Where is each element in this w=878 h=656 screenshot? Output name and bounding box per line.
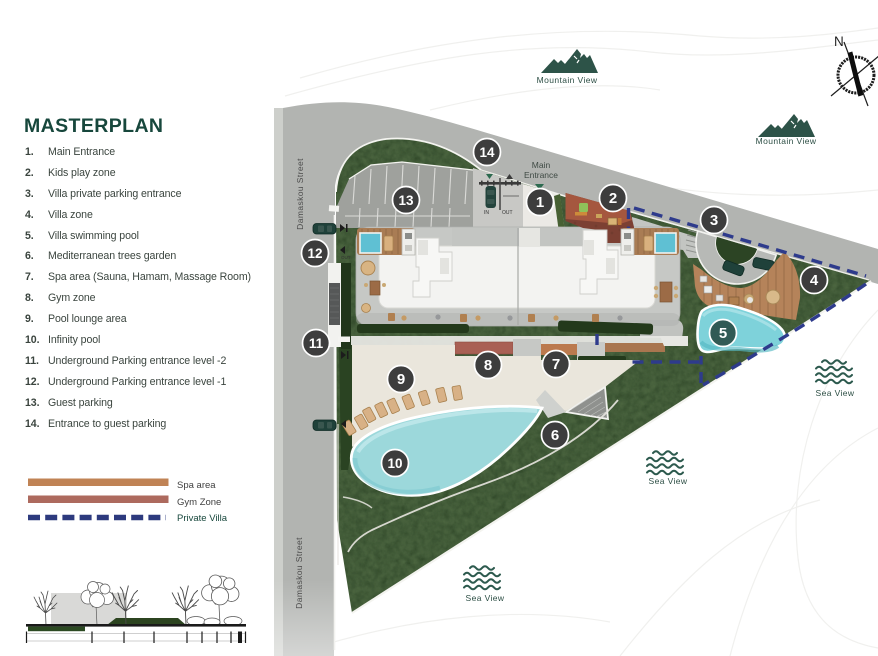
svg-text:OUT: OUT xyxy=(502,210,513,216)
svg-text:3.: 3. xyxy=(25,188,34,200)
svg-text:5.: 5. xyxy=(25,230,34,242)
svg-text:Private Villa: Private Villa xyxy=(177,513,228,524)
svg-text:4: 4 xyxy=(810,272,819,289)
svg-text:5: 5 xyxy=(719,325,727,342)
svg-text:Entrance: Entrance xyxy=(524,170,558,180)
svg-text:Gym Zone: Gym Zone xyxy=(177,497,221,508)
svg-text:11: 11 xyxy=(309,336,324,351)
svg-text:Damaskou Street: Damaskou Street xyxy=(295,158,305,230)
svg-text:13.: 13. xyxy=(25,397,40,409)
svg-text:3: 3 xyxy=(710,212,718,229)
svg-text:8.: 8. xyxy=(25,292,34,304)
svg-text:Main: Main xyxy=(532,160,551,170)
svg-text:Spa area: Spa area xyxy=(177,480,216,491)
svg-text:6: 6 xyxy=(551,427,559,444)
svg-text:10.: 10. xyxy=(25,334,40,346)
svg-text:1: 1 xyxy=(536,194,544,211)
svg-text:Underground Parking entrance l: Underground Parking entrance level -2 xyxy=(48,355,226,367)
svg-text:Villa swimming pool: Villa swimming pool xyxy=(48,230,139,242)
svg-text:12: 12 xyxy=(307,246,322,261)
svg-text:8: 8 xyxy=(484,357,492,374)
svg-text:Mountain View: Mountain View xyxy=(537,75,598,85)
svg-text:12.: 12. xyxy=(25,376,40,388)
svg-text:MASTERPLAN: MASTERPLAN xyxy=(24,115,163,137)
svg-text:Guest parking: Guest parking xyxy=(48,397,113,409)
svg-text:Sea View: Sea View xyxy=(816,388,855,398)
svg-text:10: 10 xyxy=(387,456,402,471)
svg-text:Pool lounge area: Pool lounge area xyxy=(48,313,127,325)
svg-text:14: 14 xyxy=(479,145,495,160)
svg-text:13: 13 xyxy=(398,193,414,208)
svg-text:Entrance to guest parking: Entrance to guest parking xyxy=(48,418,166,430)
svg-text:14.: 14. xyxy=(25,418,40,430)
svg-text:7.: 7. xyxy=(25,271,34,283)
svg-text:Gym zone: Gym zone xyxy=(48,292,96,304)
svg-text:9: 9 xyxy=(397,371,405,388)
svg-text:Villa private parking entrance: Villa private parking entrance xyxy=(48,188,182,200)
svg-text:9.: 9. xyxy=(25,313,34,325)
svg-text:Kids play zone: Kids play zone xyxy=(48,167,116,179)
svg-text:7: 7 xyxy=(552,356,560,373)
svg-text:2.: 2. xyxy=(25,167,34,179)
svg-text:6.: 6. xyxy=(25,250,34,262)
svg-text:Sea View: Sea View xyxy=(466,593,505,603)
svg-text:Spa area (Sauna, Hamam, Massag: Spa area (Sauna, Hamam, Massage Room) xyxy=(48,271,251,283)
svg-text:Underground Parking entrance l: Underground Parking entrance level -1 xyxy=(48,376,226,388)
svg-text:Main Entrance: Main Entrance xyxy=(48,146,115,158)
svg-text:IN: IN xyxy=(484,210,489,216)
svg-text:OUT: OUT xyxy=(341,255,351,260)
svg-text:4.: 4. xyxy=(25,209,34,221)
svg-text:Mountain View: Mountain View xyxy=(756,136,817,146)
svg-text:11.: 11. xyxy=(25,355,39,367)
svg-text:Infinity pool: Infinity pool xyxy=(48,334,100,346)
svg-text:1.: 1. xyxy=(25,146,34,158)
svg-text:Villa zone: Villa zone xyxy=(48,209,93,221)
svg-text:Mediterranean trees garden: Mediterranean trees garden xyxy=(48,250,176,262)
svg-text:2: 2 xyxy=(609,190,617,207)
svg-text:Damaskou Street: Damaskou Street xyxy=(294,537,304,609)
svg-text:Sea View: Sea View xyxy=(649,476,688,486)
svg-text:N: N xyxy=(834,34,844,49)
